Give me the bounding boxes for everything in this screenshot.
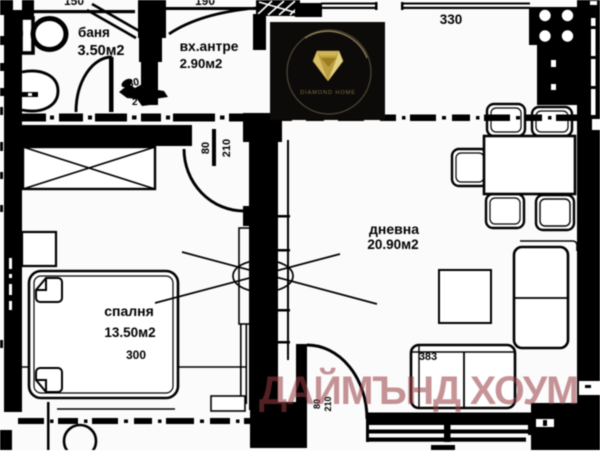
svg-text:2.90м2: 2.90м2 (180, 56, 223, 71)
svg-text:спалня: спалня (104, 303, 154, 319)
svg-text:баня: баня (78, 25, 110, 40)
svg-text:80: 80 (200, 142, 212, 154)
svg-text:20.90м2: 20.90м2 (367, 237, 418, 252)
svg-text:210: 210 (221, 139, 233, 157)
svg-text:300: 300 (126, 348, 146, 362)
svg-text:3.50м2: 3.50м2 (77, 43, 124, 59)
svg-text:190: 190 (195, 0, 215, 8)
svg-text:DIAMOND HOME: DIAMOND HOME (300, 90, 356, 96)
svg-text:383: 383 (419, 351, 437, 363)
svg-text:вх.антре: вх.антре (180, 39, 239, 54)
svg-text:2 0: 2 0 (132, 97, 146, 108)
svg-text:150: 150 (64, 0, 84, 8)
svg-text:13.50м2: 13.50м2 (104, 325, 155, 340)
svg-text:дневна: дневна (369, 221, 419, 237)
svg-text:330: 330 (440, 12, 463, 27)
svg-text:ДАЙМЪНД ХОУМ: ДАЙМЪНД ХОУМ (259, 368, 579, 413)
